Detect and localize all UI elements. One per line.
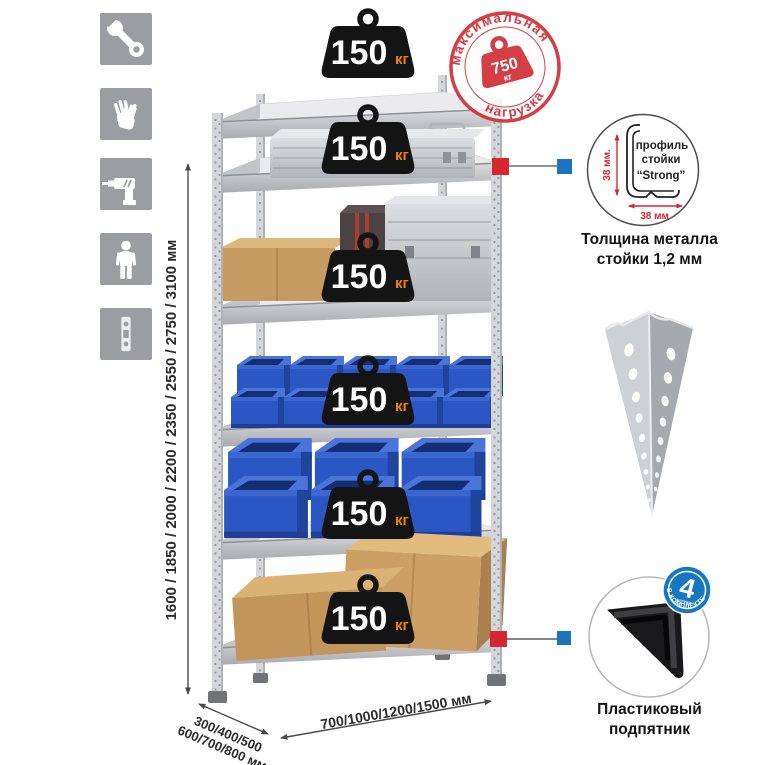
svg-text:150: 150: [331, 495, 388, 533]
svg-text:профиль: профиль: [636, 140, 689, 152]
svg-text:150: 150: [331, 34, 388, 72]
svg-text:стойки: стойки: [642, 154, 681, 166]
wrench-icon: [100, 13, 152, 65]
height-dimension-line: [180, 158, 196, 700]
svg-text:кг: кг: [395, 51, 409, 68]
svg-text:150: 150: [331, 130, 388, 168]
blue-marker: [557, 631, 571, 645]
blue-marker: [557, 159, 572, 174]
callout-connector-top: [490, 156, 590, 180]
red-marker: [492, 158, 509, 175]
gloves-icon: [100, 88, 152, 140]
svg-text:кг: кг: [395, 147, 409, 164]
svg-text:кг: кг: [395, 275, 409, 292]
svg-text:150: 150: [331, 381, 388, 419]
shelf-post-front-left: [208, 113, 227, 703]
svg-text:38 мм.: 38 мм.: [602, 149, 613, 181]
max-load-stamp: максимальная нагрузка 750 кг: [440, 2, 570, 132]
weight-badge: 150 кг: [322, 11, 415, 78]
metal-thickness-caption: Толщина металла стойки 1,2 мм: [572, 230, 727, 270]
svg-text:150: 150: [331, 600, 388, 638]
drill-icon: [100, 158, 152, 210]
height-dimension-label: 1600 / 1850 / 2000 / 2200 / 2350 / 2550 …: [163, 160, 181, 700]
plastic-foot-caption: Пластиковый подпятник: [572, 700, 727, 740]
svg-text:150: 150: [331, 258, 388, 296]
red-marker: [490, 631, 507, 647]
svg-text:38 мм.: 38 мм.: [640, 211, 672, 222]
person-icon: [100, 233, 152, 285]
svg-text:кг: кг: [395, 512, 409, 529]
post-profile-icon: [100, 308, 152, 360]
svg-text:кг: кг: [395, 398, 409, 415]
callout-connector-bottom: [488, 629, 588, 653]
kit-quantity-badge: 4 штуки В КОМПЛЕКТЕ: [661, 564, 713, 616]
product-infographic: 1600 / 1850 / 2000 / 2200 / 2350 / 2550 …: [0, 0, 765, 765]
steel-angle-post-image: [597, 306, 707, 531]
post-profile-diagram: профиль стойки “Strong” 38 мм. 38 мм.: [586, 113, 700, 227]
svg-text:кг: кг: [395, 617, 409, 634]
svg-text:“Strong”: “Strong”: [637, 170, 686, 182]
